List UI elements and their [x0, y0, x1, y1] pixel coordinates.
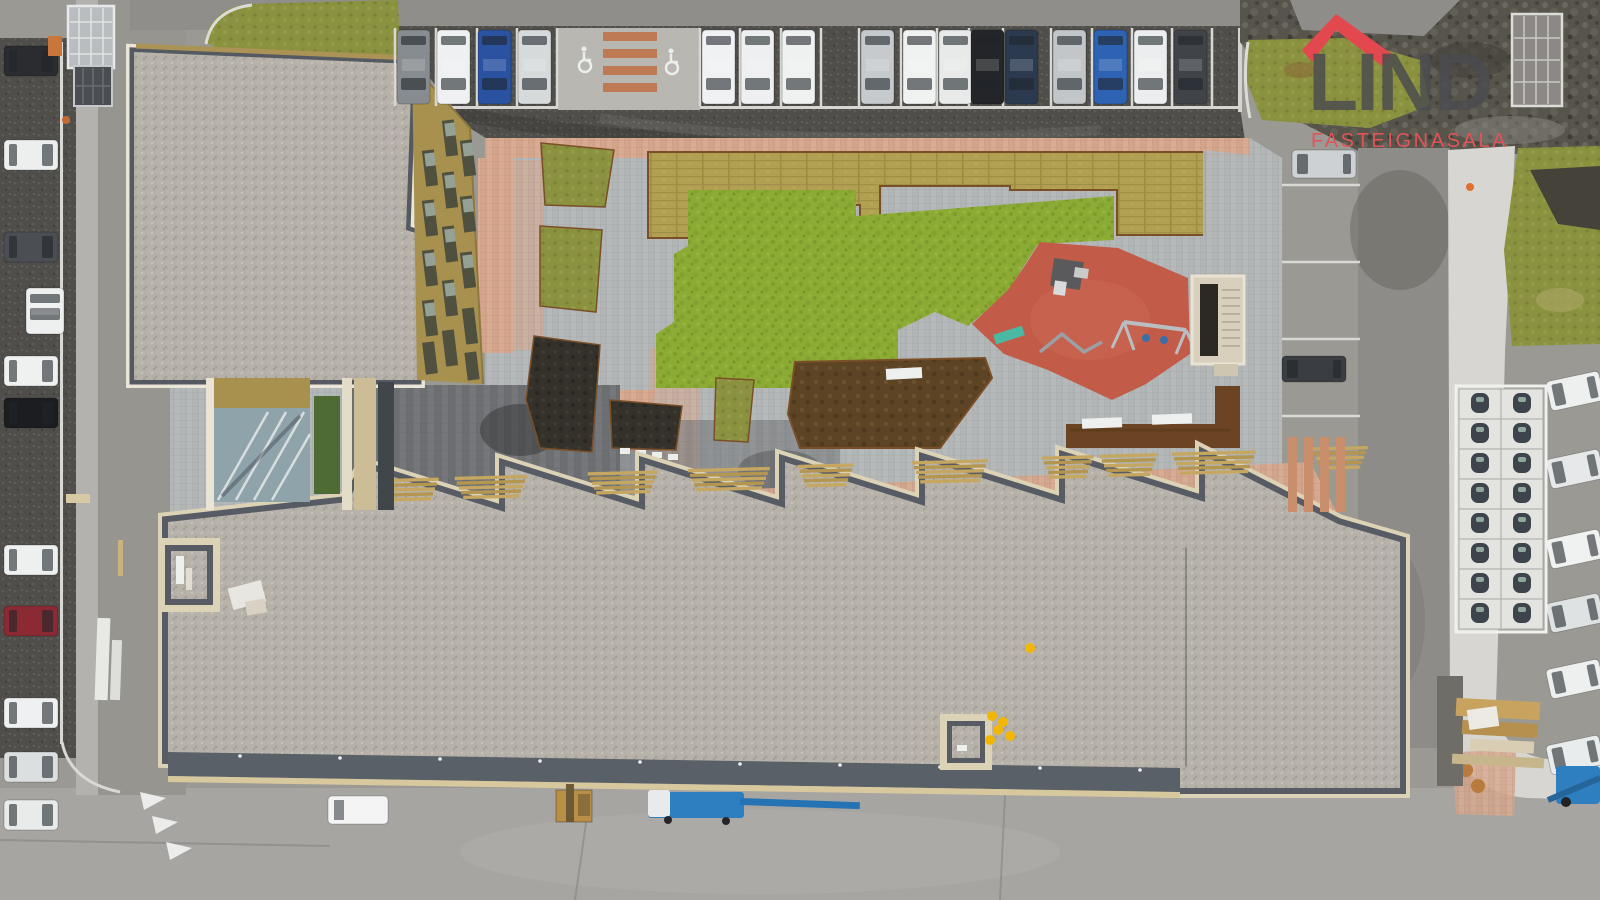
- grass-bed: [714, 378, 754, 442]
- canopy-gold-band: [214, 378, 310, 408]
- left-sidewalk: [76, 0, 98, 795]
- carport-cell: [1459, 479, 1501, 509]
- grass-bed: [540, 226, 602, 312]
- yellow-object: [993, 725, 1003, 735]
- aerial-scene: [0, 0, 1600, 900]
- car: [4, 752, 58, 782]
- grass-bare-spot: [1284, 62, 1316, 78]
- left-parking-line: [60, 42, 63, 744]
- crosswalk-stripe: [1336, 437, 1345, 512]
- yellow-object: [1025, 643, 1035, 653]
- carport-grid: [1456, 386, 1546, 632]
- road-dirt-stain: [1350, 170, 1450, 290]
- green-wall: [314, 396, 340, 494]
- car: [26, 288, 64, 334]
- dirt-dark-streak: [1430, 42, 1510, 78]
- carport-cell: [1459, 539, 1501, 569]
- dirt-mottle: [1455, 116, 1565, 144]
- car: [397, 30, 430, 104]
- cage-trailer-right: [1512, 14, 1562, 106]
- pink-band-vertical: [478, 158, 514, 353]
- crosswalk-stripe: [1320, 437, 1329, 512]
- grass-bed: [541, 143, 614, 207]
- carport-cell: [1459, 509, 1501, 539]
- car: [4, 606, 58, 636]
- carport-cell: [1501, 419, 1543, 449]
- worker-orange: [62, 116, 70, 124]
- skylight-left: [158, 538, 220, 612]
- soil-bed: [526, 336, 600, 452]
- car: [782, 30, 815, 104]
- carport-cell: [1459, 569, 1501, 599]
- car: [4, 545, 58, 575]
- scaffold-planks: [110, 640, 122, 700]
- entry-glass-dark: [378, 382, 394, 510]
- canopy-trim: [206, 378, 214, 510]
- traffic-cone: [1466, 183, 1474, 191]
- aerial-photo-stage: LIND FASTEIGNASALA: [0, 0, 1600, 900]
- carport-cell: [1501, 449, 1543, 479]
- canopy-column: [342, 378, 352, 510]
- car: [1134, 30, 1167, 104]
- carport-cell: [1459, 449, 1501, 479]
- soil-bed: [610, 400, 682, 450]
- bench: [886, 367, 923, 380]
- car: [861, 30, 894, 104]
- brick-stripe: [603, 32, 657, 41]
- car: [1282, 356, 1346, 382]
- roof-gravel: [134, 52, 419, 380]
- car: [4, 356, 58, 386]
- lumber: [66, 494, 90, 503]
- car: [1005, 30, 1038, 104]
- crosswalk-stripe: [1304, 437, 1313, 512]
- brick-stripe: [603, 66, 657, 75]
- carport-cell: [1501, 389, 1543, 419]
- carport-cell: [1501, 569, 1543, 599]
- entrance-canopy: [206, 378, 394, 510]
- car: [939, 30, 972, 104]
- carport-cell: [1459, 599, 1501, 629]
- yellow-object: [985, 735, 995, 745]
- car: [437, 30, 470, 104]
- carport-cell: [1501, 479, 1543, 509]
- car: [478, 30, 511, 104]
- car: [1053, 30, 1086, 104]
- brick-stripe: [603, 49, 657, 58]
- forklift: [556, 784, 592, 822]
- lumber: [118, 540, 123, 576]
- carport-cell: [1501, 599, 1543, 629]
- parking-curb-line: [385, 106, 1240, 109]
- road-wear-patch: [460, 810, 1060, 894]
- car: [1094, 30, 1127, 104]
- car: [741, 30, 774, 104]
- skylight-right: [940, 714, 992, 770]
- crosswalk-stripe: [1288, 437, 1297, 512]
- car: [4, 140, 58, 170]
- bench: [1152, 413, 1192, 424]
- bench: [1082, 417, 1122, 428]
- car: [903, 30, 936, 104]
- orange-crate: [48, 36, 62, 56]
- car: [1174, 30, 1207, 104]
- paving-circle: [1471, 779, 1485, 793]
- beige-wall: [354, 378, 376, 510]
- yellow-object: [1005, 731, 1015, 741]
- swing-seat: [1160, 336, 1168, 344]
- carport-cell: [1459, 389, 1501, 419]
- yellow-object: [987, 711, 997, 721]
- white-van: [328, 796, 388, 824]
- car: [4, 232, 58, 262]
- car: [4, 800, 58, 830]
- brick-stripe: [603, 83, 657, 92]
- swing-seat: [1142, 334, 1150, 342]
- car: [1292, 150, 1356, 178]
- dry-grass-patch: [1536, 288, 1584, 312]
- white-sign: [1467, 706, 1499, 730]
- car: [518, 30, 551, 104]
- carport-cell: [1459, 419, 1501, 449]
- car: [4, 398, 58, 428]
- car: [4, 698, 58, 728]
- stairwell-structure: [1192, 276, 1244, 376]
- carport-cell: [1501, 509, 1543, 539]
- carport-cell: [1501, 539, 1543, 569]
- car: [702, 30, 735, 104]
- car: [971, 30, 1004, 104]
